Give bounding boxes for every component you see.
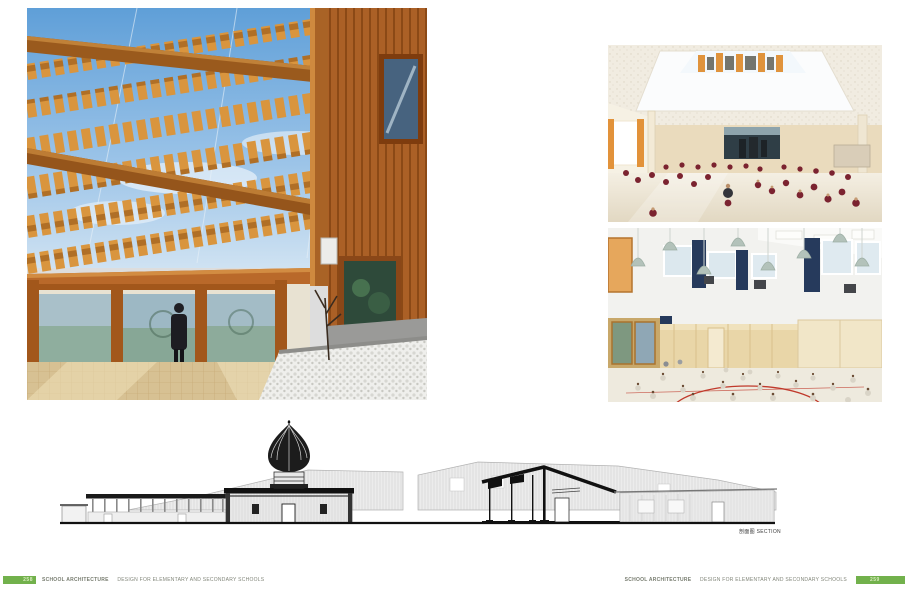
footer-page-number-bar-left: 258 bbox=[3, 576, 36, 584]
page-number-right: 259 bbox=[856, 576, 905, 584]
hall-illustration bbox=[608, 45, 882, 222]
photo-hall-skylight bbox=[608, 45, 882, 222]
section-drawing-svg bbox=[58, 420, 778, 535]
section-label-zh: 剖面图 bbox=[739, 529, 755, 535]
footer-running-title-left: SCHOOL ARCHITECTURE DESIGN FOR ELEMENTAR… bbox=[42, 576, 264, 584]
photo-timber-atrium bbox=[27, 8, 427, 400]
book-title-right: SCHOOL ARCHITECTURE bbox=[625, 577, 692, 583]
section-label-en: SECTION bbox=[757, 529, 781, 535]
wood-clad-wall bbox=[321, 8, 427, 358]
right-wing-elevation bbox=[614, 489, 777, 522]
wall-speaker bbox=[321, 238, 337, 264]
building-section-drawing bbox=[58, 420, 778, 535]
skylight-well bbox=[636, 51, 854, 111]
footer-page-number-bar-right: 259 bbox=[856, 576, 905, 584]
gym-illustration bbox=[608, 228, 882, 402]
section-drawing-label: 剖面图 SECTION bbox=[739, 529, 829, 535]
book-title-left: SCHOOL ARCHITECTURE bbox=[42, 577, 109, 583]
book-spread-page: 剖面图 SECTION 258 SCHOOL ARCHITECTURE DESI… bbox=[0, 0, 905, 600]
gym-floor bbox=[608, 368, 882, 402]
hall-window bbox=[613, 121, 639, 165]
trolley bbox=[834, 145, 870, 167]
book-subtitle-right: DESIGN FOR ELEMENTARY AND SECONDARY SCHO… bbox=[700, 577, 847, 583]
footer-running-title-right: SCHOOL ARCHITECTURE DESIGN FOR ELEMENTAR… bbox=[625, 576, 847, 584]
glazed-screen bbox=[608, 318, 660, 368]
page-number-left: 258 bbox=[3, 576, 36, 584]
atrium-illustration bbox=[27, 8, 427, 400]
temple-dome bbox=[268, 420, 310, 488]
temple-block bbox=[224, 488, 354, 523]
projection-screen bbox=[724, 127, 780, 159]
photo-gym-hall bbox=[608, 228, 882, 402]
book-subtitle-left: DESIGN FOR ELEMENTARY AND SECONDARY SCHO… bbox=[117, 577, 264, 583]
